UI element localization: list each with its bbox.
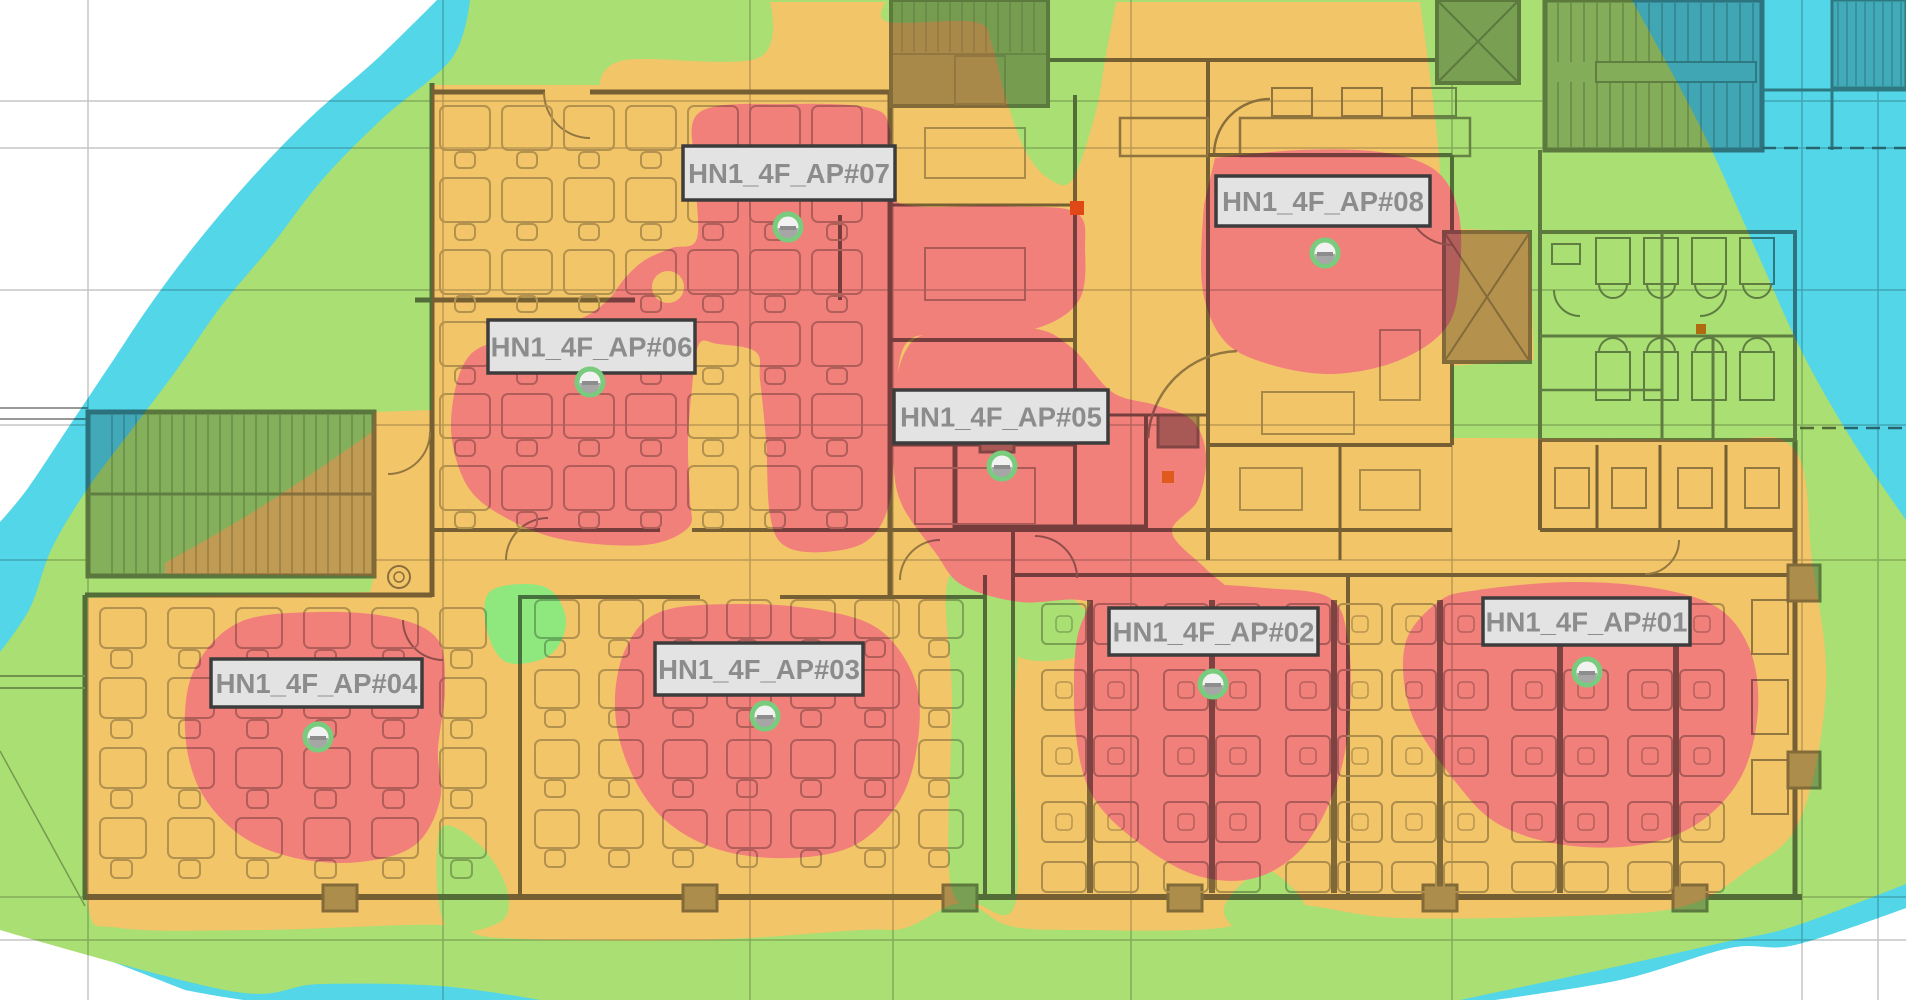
svg-text:HN1_4F_AP#03: HN1_4F_AP#03: [658, 654, 860, 685]
svg-text:HN1_4F_AP#04: HN1_4F_AP#04: [216, 668, 418, 699]
svg-text:HN1_4F_AP#05: HN1_4F_AP#05: [900, 402, 1102, 433]
svg-text:HN1_4F_AP#01: HN1_4F_AP#01: [1486, 607, 1688, 638]
svg-text:HN1_4F_AP#02: HN1_4F_AP#02: [1113, 617, 1315, 648]
svg-text:HN1_4F_AP#07: HN1_4F_AP#07: [688, 158, 890, 189]
svg-text:HN1_4F_AP#08: HN1_4F_AP#08: [1222, 186, 1424, 217]
svg-text:HN1_4F_AP#06: HN1_4F_AP#06: [491, 332, 693, 363]
